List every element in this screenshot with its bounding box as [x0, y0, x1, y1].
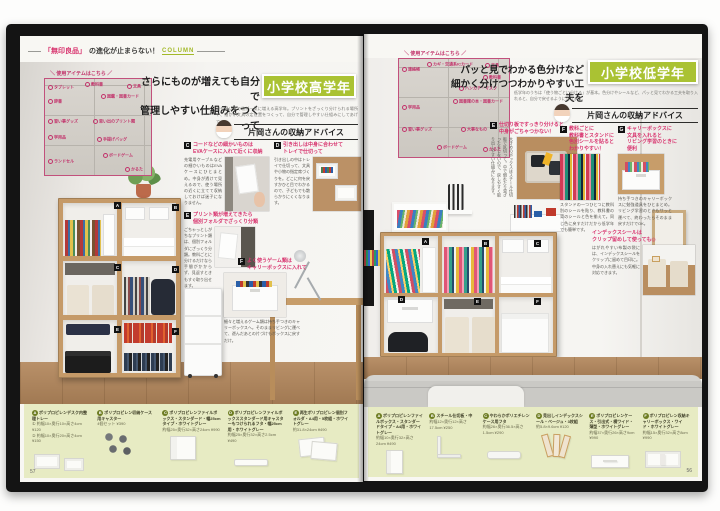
tip-title: 教科ごとに 教科書とスタンドに 色別シールを貼ると わかりやすい！: [569, 126, 614, 152]
tip-title-line: 引き出しは中身に合わせて: [283, 142, 343, 149]
textbook-spines: [444, 247, 494, 293]
tip-card: F 教科ごとに 教科書とスタンドに 色別シールを貼ると わかりやすい！ スタンド…: [560, 126, 614, 233]
shelf-cell: [499, 297, 553, 354]
tip-photo-carry-box: [618, 154, 664, 194]
diagram-label: 習い事グッズ: [402, 127, 432, 132]
diagram-label: 習い事グッズ: [48, 119, 78, 124]
diagram-label: ボードゲーム: [103, 153, 133, 158]
shelf-unit-left: [58, 198, 181, 378]
tray: [335, 185, 357, 201]
product-name: ポリプロピレン収納ケース用キャスター: [97, 410, 152, 421]
product-spec: 4個セット ¥390: [97, 421, 155, 427]
photo-marker: D: [398, 296, 405, 303]
product-spec: 約幅10×奥行32×高さ24cm ¥490: [376, 435, 423, 446]
photo-marker: C: [114, 264, 121, 271]
photo-marker: B: [172, 204, 179, 211]
product-card: E再生ポリプロピレン個別フォルダ・A4用・5枚組・ホワイトグレー 約31.8×2…: [293, 410, 351, 473]
magazine-spines: [124, 277, 150, 315]
product-spec: ① 約幅10×奥行10×高さ4cm ¥120: [32, 421, 90, 432]
small-bin: [502, 239, 524, 253]
tip-title-line: 個別フォルダでざっくり分類: [193, 219, 258, 226]
product-spec: 約5.8×9.6cm ¥120: [536, 424, 583, 430]
header-rule-right: [197, 51, 225, 52]
flat-box-stack: [124, 238, 174, 256]
file-box-shape: [170, 436, 196, 460]
lidded-box: [501, 313, 549, 353]
shelf-cell: [122, 320, 176, 373]
tip-photo-eva-case: [225, 157, 269, 211]
tip-title: コードなどの細かいものは EVAケースに入れて近くに収納: [193, 142, 263, 155]
printer: [65, 351, 111, 373]
small-bin: [149, 207, 169, 220]
lead-paragraph: 塾や習い事で物が一気に増える高学年。プリントをざっくり分けられる場所や、細かい文…: [216, 106, 358, 125]
shelf-unit-right: [380, 232, 557, 357]
diagram-label: 連絡帳: [402, 67, 420, 72]
carry-handle: [250, 289, 260, 292]
dark-items: [65, 263, 115, 275]
product-name: ポリプロピレンファイルボックス・スタンダード・幅25cmタイプ・ホワイトグレー: [162, 410, 220, 426]
drawer-slot: [402, 307, 418, 310]
tip-title-line: キャリーボックスに入れて: [247, 265, 307, 272]
tip-marker: E: [490, 122, 497, 129]
tip-marker: D: [274, 142, 281, 149]
canvas-bag: [472, 317, 496, 353]
canvas-bag: [92, 285, 114, 315]
item-map-diagram: タブレット 辞書 教科書 図鑑・図書カード 文具 習い事グッズ 学用品 思い出の…: [44, 78, 152, 176]
thumb-file-box: [162, 434, 220, 462]
advisor-avatar: [554, 104, 570, 122]
lid-shape: [234, 459, 268, 466]
diagram-label: 教科書: [85, 82, 103, 87]
canvas-bag: [445, 317, 469, 353]
tip-body: スタンドの一つひとつに教科別のシールを貼り、教科書の背のシールと色を揃えて。同じ…: [560, 202, 614, 233]
picture-books: [397, 210, 443, 228]
product-spec: 約31.8×24cm ¥490: [293, 427, 351, 433]
carry-handle-shape: [660, 454, 665, 465]
stationery-items: [321, 167, 333, 173]
shelf-cell: [122, 203, 176, 256]
tray-shape: [34, 454, 60, 469]
shelf-cell: [63, 320, 117, 373]
thumb-soft-lid: [483, 438, 530, 466]
tip-title: よく使うゲーム類は キャリーボックスに入れて: [247, 258, 307, 271]
brand-text: 「無印良品」: [44, 46, 86, 56]
product-card: Aポリプロピレンファイルボックス・スタンダードタイプ・A4用・ホワイトグレー 約…: [376, 413, 423, 472]
backpack: [151, 279, 175, 315]
tip-photo-color-spines: [560, 154, 600, 200]
individual-folder: [218, 232, 239, 260]
header-title: の進化が止まらない！: [89, 46, 159, 56]
photo-marker: F: [534, 298, 541, 305]
thumb-casters: [97, 429, 155, 457]
shelf-cell: [63, 261, 117, 314]
photo-marker: B: [482, 240, 489, 247]
divider-upright: [437, 436, 441, 456]
tip-title: インデックスシールは クリップ留めして使っても◎: [592, 230, 656, 243]
game-controllers: [236, 281, 272, 287]
photo-marker: E: [114, 326, 121, 333]
advisor-heading: 片岡さんの収納アドバイス: [572, 108, 698, 123]
page-gutter-shadow: [357, 34, 369, 482]
photo-marker: A: [422, 238, 429, 245]
column-label: COLUMN: [162, 48, 194, 55]
product-spec: ② 約幅10×奥行20×高さ4cm ¥150: [32, 433, 90, 444]
index-sticker: [652, 256, 660, 262]
product-name: スチール仕切板・中: [436, 413, 472, 418]
caster-wheel: [214, 374, 218, 378]
product-spec: 約幅37×奥行26×高さ9cm ¥990: [589, 430, 636, 441]
tip-photo-index-bags: [643, 245, 695, 295]
tip-title-line: 仕切り板ですっきり分けると: [499, 122, 564, 129]
shelf-cell: [499, 236, 553, 293]
blue-item: [534, 211, 542, 217]
white-table: [428, 386, 524, 407]
product-name: やわらかポリエチレンケース用フタ: [483, 413, 530, 424]
shelf-cell: [384, 297, 438, 354]
canvas-bag: [670, 261, 688, 287]
tip-title-line: コードなどの細かいものは: [193, 142, 263, 149]
diagram-label: 思い出のプリント類: [93, 119, 135, 124]
advisor-heading: 片岡さんの収納アドバイス: [234, 124, 358, 140]
product-card: Fポリプロピレン収納キャリーボックス・ワイド・ホワイトグレー 約幅15×奥行32…: [643, 413, 690, 472]
product-card: Aポリプロピレンデスク内整理トレー ① 約幅10×奥行10×高さ4cm ¥120…: [32, 410, 90, 473]
canvas-bag: [648, 259, 666, 287]
thumb-index-stickers: [536, 432, 583, 460]
tip-title: 仕切り板ですっきり分けると 中身がごちゃつかない！: [499, 122, 564, 135]
striped-pouch: [448, 184, 464, 210]
magazine-spread-scan: 「無印良品」 の進化が止まらない！ COLUMN: [0, 0, 720, 511]
tip-title-line: 便利: [627, 146, 677, 153]
drawer-box: [387, 299, 433, 323]
thumb-file-box-a4: [376, 448, 423, 476]
tip-body: はがれやすい布製の袋には、インデックスシールをクリップに留めて目印に。中身の入れ…: [592, 245, 640, 295]
divider-base: [437, 454, 461, 458]
product-spec: 約幅15×奥行32×高さ8cm ¥990: [643, 430, 690, 441]
product-spec: 約幅26×奥行36.5×高さ1.5cm ¥290: [483, 424, 530, 435]
column-header: 「無印良品」 の進化が止まらない！ COLUMN: [28, 45, 360, 57]
diagram-label: 手提げバッグ: [97, 137, 127, 142]
diagram-label: ランドセル: [48, 159, 74, 164]
diagram-caption: ＼ 使用アイテムはこちら ／: [404, 50, 466, 57]
tip-body: 持ち手つきのキャリーボックスに勉強道具をひとまとめ。リビング学習のときもサッと運…: [618, 196, 672, 227]
black-bag: [388, 332, 428, 352]
diagram-label: かるた: [125, 167, 143, 172]
diagram-label: 辞書: [48, 99, 62, 104]
caster-wheel: [188, 374, 192, 378]
hand: [254, 192, 265, 207]
tip-title-line: わかりやすい！: [569, 146, 614, 153]
tip-title-line: トレイで仕切って: [283, 149, 343, 156]
tip-marker: C: [184, 142, 191, 149]
canvas-bag: [67, 285, 89, 315]
photo-marker: F: [172, 328, 179, 335]
tip-title-line: 中身がごちゃつかない！: [499, 129, 564, 136]
tip-card: D 引き出しは中身に合わせて トレイで仕切って 引き出しの中はトレイで仕切って、…: [274, 142, 362, 211]
tip-title: 引き出しは中身に合わせて トレイで仕切って: [283, 142, 343, 155]
thumb-carry-box: [643, 443, 690, 471]
product-spec: 約幅25×奥行32×高さ24cm ¥990: [162, 427, 220, 433]
tip-marker: F: [238, 258, 245, 265]
tip-title-line: プリント類が増えてきたら: [193, 212, 258, 219]
page-number: 57: [30, 469, 36, 475]
page-right: A B C D E F ＼ 使用アイテムはこちら ／ 連絡帳 カギ・交通系ICカ…: [364, 34, 702, 481]
tip-body: 引き出しの中はトレイで仕切って、文具や小物の指定席づくりを。どこに何を戻すかひと…: [274, 157, 310, 211]
page-left: 「無印良品」 の進化が止まらない！ COLUMN: [20, 36, 363, 482]
headline-line: さらにものが増えても自分で: [138, 76, 260, 105]
white-drawer-cart: [184, 288, 222, 376]
tip-card: インデックスシールは クリップ留めして使っても◎ はがれやすい布製の袋には、イン…: [592, 230, 698, 295]
product-spec: 約幅12×奥行12×高さ17.5cm ¥250: [429, 419, 476, 430]
product-spec: 約幅25×奥行32×高さ2.5cm ¥490: [228, 432, 286, 443]
grade-badge: 小学校高学年: [262, 74, 356, 98]
manga-row: [124, 323, 172, 343]
product-card: Bポリプロピレン収納ケース用キャスター 4個セット ¥390: [97, 410, 155, 473]
photo-marker: C: [534, 240, 541, 247]
page-number: 56: [686, 468, 692, 474]
tip-card: F よく使うゲーム類は キャリーボックスに入れて 細々と増えるゲーム類は持ち手つ…: [224, 258, 300, 344]
tip-title-line: リビング学習のときに: [627, 139, 677, 146]
diagram-label: 大事なもの: [461, 127, 487, 132]
product-name: 見出しインデックスシール・ベージュ・3枚組: [536, 413, 583, 424]
flat-box-stack: [501, 277, 551, 293]
tray-shape: [64, 458, 84, 471]
tip-title-line: EVAケースに入れて近くに収納: [193, 149, 263, 156]
diagram-label: ボードゲーム: [437, 145, 467, 150]
sofa: [364, 375, 702, 407]
thumb-folders: [293, 434, 351, 462]
product-card: Dポリプロピレンファイルボックススタンダード用キャスターもつけられるフタ・幅25…: [228, 410, 286, 473]
lid-shape: [487, 451, 521, 459]
product-name: ポリプロピレンケース・引出式・横ワイド・薄型・ホワイトグレー: [589, 413, 633, 429]
leaning-books: [386, 249, 420, 293]
thumb-steel-divider: [429, 432, 476, 460]
tip-photo-drawer-trays: [313, 157, 361, 211]
tip-title: キャリーボックスに 文具を入れると リビング学習のときに 便利: [627, 126, 677, 152]
shelf-cell: [63, 203, 117, 256]
thumb-lid: [228, 445, 286, 473]
tray-on-shelf-top: [392, 202, 448, 232]
product-name: ポリプロピレンファイルボックス・スタンダードタイプ・A4用・ホワイトグレー: [376, 413, 423, 435]
product-name: 再生ポリプロピレン個別フォルダ・A4用・5枚組・ホワイトグレー: [293, 410, 348, 426]
small-books: [625, 162, 649, 172]
product-name: ポリプロピレン収納キャリーボックス・ワイド・ホワイトグレー: [643, 413, 690, 429]
headline-line: パッと見でわかる色分けなど: [450, 64, 584, 78]
shelf-cell: [442, 297, 496, 354]
small-bin: [125, 207, 145, 220]
book-spines: [65, 220, 101, 256]
manga-row: [124, 353, 172, 371]
product-strip: Aポリプロピレンデスク内整理トレー ① 約幅10×奥行10×高さ4cm ¥120…: [24, 404, 359, 478]
tip-title-line: 色別シールを貼ると: [569, 139, 614, 146]
product-card: Bスチール仕切板・中 約幅12×奥行12×高さ17.5cm ¥250: [429, 413, 476, 472]
diagram-label: 学用品: [402, 105, 420, 110]
eva-case: [235, 164, 259, 195]
file-box-shape: [386, 450, 403, 474]
product-card: Eポリプロピレンケース・引出式・横ワイド・薄型・ホワイトグレー 約幅37×奥行2…: [589, 413, 636, 472]
header-rule-left: [28, 51, 41, 52]
photo-marker: E: [474, 298, 481, 305]
red-item: [546, 208, 556, 216]
advisor-avatar: [216, 120, 232, 138]
tip-body: ごちゃっとしがちなプリント類は、個別フォルダにざっくり分類。教科ごとに分けるだけ…: [184, 227, 212, 289]
tip-card: C コードなどの細かいものは EVAケースに入れて近くに収納 充電用ケーブルなど…: [184, 142, 270, 211]
tip-marker: F: [560, 126, 567, 133]
shelf-edge: [225, 157, 233, 211]
tip-body: 大きめのボックスはスチール仕切板で区切って。中で倒れたり混ざったりしないので、戻…: [490, 137, 514, 199]
shelf-cell: [122, 261, 176, 314]
shelf-cell: [384, 236, 438, 293]
product-card: Cポリプロピレンファイルボックス・スタンダード・幅25cmタイプ・ホワイトグレー…: [162, 410, 220, 473]
plant-pot: [136, 184, 151, 198]
product-strip: Aポリプロピレンファイルボックス・スタンダードタイプ・A4用・ホワイトグレー 約…: [368, 407, 698, 477]
dark-items: [444, 299, 494, 309]
diagram-label: タブレット: [48, 85, 74, 90]
tip-body: 充電用ケーブルなどの細かいものはEVAケースにひとまとめ。中身が透けて見えるので…: [184, 157, 222, 211]
diagram-label: 学用品: [48, 135, 66, 140]
photo-marker: D: [172, 266, 179, 273]
carry-box: [622, 170, 660, 190]
carry-handle: [636, 174, 646, 177]
tip-title: プリント類が増えてきたら 個別フォルダでざっくり分類: [193, 212, 258, 225]
thumb-desk-trays: [32, 446, 90, 474]
diagram-caption: ＼ 使用アイテムはこちら ／: [50, 70, 112, 77]
tip-title-line: キャリーボックスに: [627, 126, 677, 133]
desk-organizer-top: [510, 202, 564, 232]
tip-title-line: クリップ留めして使っても◎: [592, 237, 656, 244]
folder-shape: [310, 441, 337, 461]
tip-card: G キャリーボックスに 文具を入れると リビング学習のときに 便利 持ち手つきの…: [618, 126, 672, 227]
product-card: D見出しインデックスシール・ベージュ・3枚組 約5.8×9.6cm ¥120: [536, 413, 583, 472]
file-box: [422, 247, 436, 293]
tip-marker: E: [184, 212, 191, 219]
product-name: ポリプロピレンデスク内整理トレー: [32, 410, 87, 421]
tip-marker: G: [618, 126, 625, 133]
folded-clothes: [66, 324, 110, 335]
diagram-label: 図鑑・図書カード: [101, 94, 139, 99]
grade-badge: 小学校低学年: [588, 60, 698, 84]
photo-marker: A: [114, 202, 121, 209]
drawer-slot: [603, 460, 617, 462]
tip-body: 細々と増えるゲーム類は持ち手つきのキャリーボックスへ。そのままリビングに運べて、…: [224, 319, 300, 344]
lead-paragraph: 低学年のうちは「使う物ごとに分ける」が基本。色分けやシールなど、パッと見てわかる…: [514, 90, 698, 103]
product-name: ポリプロピレンファイルボックススタンダード用キャスターもつけられるフタ・幅25c…: [228, 410, 284, 432]
tip-photo-game-box: [224, 273, 286, 317]
thumb-wide-drawer: [589, 443, 636, 471]
file-box: [103, 214, 115, 256]
pens: [514, 205, 532, 218]
product-card: Cやわらかポリエチレンケース用フタ 約幅26×奥行36.5×高さ1.5cm ¥2…: [483, 413, 530, 472]
